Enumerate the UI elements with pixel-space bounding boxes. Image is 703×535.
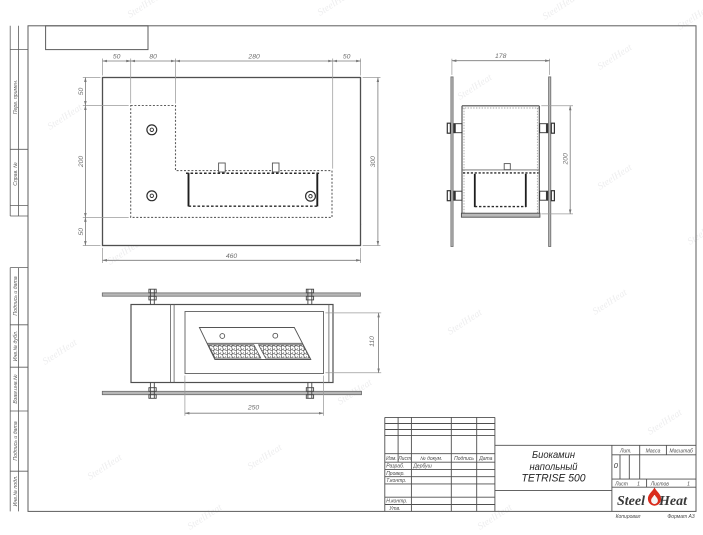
svg-text:50: 50	[78, 228, 85, 236]
svg-text:Т.контр.: Т.контр.	[386, 478, 406, 484]
svg-text:Копировал: Копировал	[616, 514, 641, 520]
svg-text:Н.контр.: Н.контр.	[386, 499, 407, 505]
svg-text:Лит.: Лит.	[619, 449, 632, 455]
svg-text:1: 1	[637, 481, 640, 487]
svg-text:Heat: Heat	[658, 494, 688, 509]
svg-text:№ докум.: № докум.	[420, 456, 442, 462]
svg-text:Лист: Лист	[397, 456, 411, 462]
svg-text:Масса: Масса	[646, 449, 661, 455]
svg-text:Инв.№ дубл.: Инв.№ дубл.	[13, 331, 19, 361]
svg-text:460: 460	[226, 253, 238, 260]
svg-text:Лист: Лист	[614, 481, 628, 487]
svg-text:Подпись: Подпись	[454, 456, 474, 462]
svg-text:50: 50	[113, 54, 121, 61]
svg-text:80: 80	[149, 54, 157, 61]
svg-text:Справ. №: Справ. №	[13, 162, 19, 186]
svg-text:Инв.№ подл.: Инв.№ подл.	[13, 476, 19, 507]
svg-text:110: 110	[369, 336, 376, 347]
svg-text:Перв. примен.: Перв. примен.	[13, 80, 19, 114]
svg-text:250: 250	[247, 405, 260, 412]
svg-text:50: 50	[343, 54, 351, 61]
svg-text:200: 200	[562, 153, 569, 166]
svg-text:Биокамин: Биокамин	[532, 449, 575, 461]
svg-text:1: 1	[687, 481, 690, 487]
svg-text:напольный: напольный	[530, 461, 578, 473]
svg-text:TETRISE 500: TETRISE 500	[522, 473, 587, 485]
svg-text:Steel: Steel	[617, 494, 645, 509]
svg-text:178: 178	[495, 53, 507, 60]
svg-text:Разраб.: Разраб.	[386, 464, 404, 470]
svg-text:Провер.: Провер.	[386, 471, 405, 477]
svg-text:280: 280	[247, 54, 260, 61]
svg-text:300: 300	[370, 156, 377, 168]
svg-text:Взам.инв.№: Взам.инв.№	[13, 374, 19, 404]
svg-text:Дербуш: Дербуш	[412, 464, 432, 470]
svg-text:Листов: Листов	[650, 481, 670, 487]
svg-text:Подпись и дата: Подпись и дата	[13, 421, 19, 460]
svg-text:Изм.: Изм.	[386, 456, 397, 462]
svg-text:Формат А3: Формат А3	[667, 514, 695, 520]
svg-text:Подпись и дата: Подпись и дата	[13, 276, 19, 315]
svg-text:Утв.: Утв.	[389, 506, 400, 512]
svg-text:Масштаб: Масштаб	[670, 449, 694, 455]
svg-text:200: 200	[78, 156, 85, 169]
svg-text:50: 50	[78, 88, 85, 96]
svg-text:Дата: Дата	[478, 456, 492, 462]
